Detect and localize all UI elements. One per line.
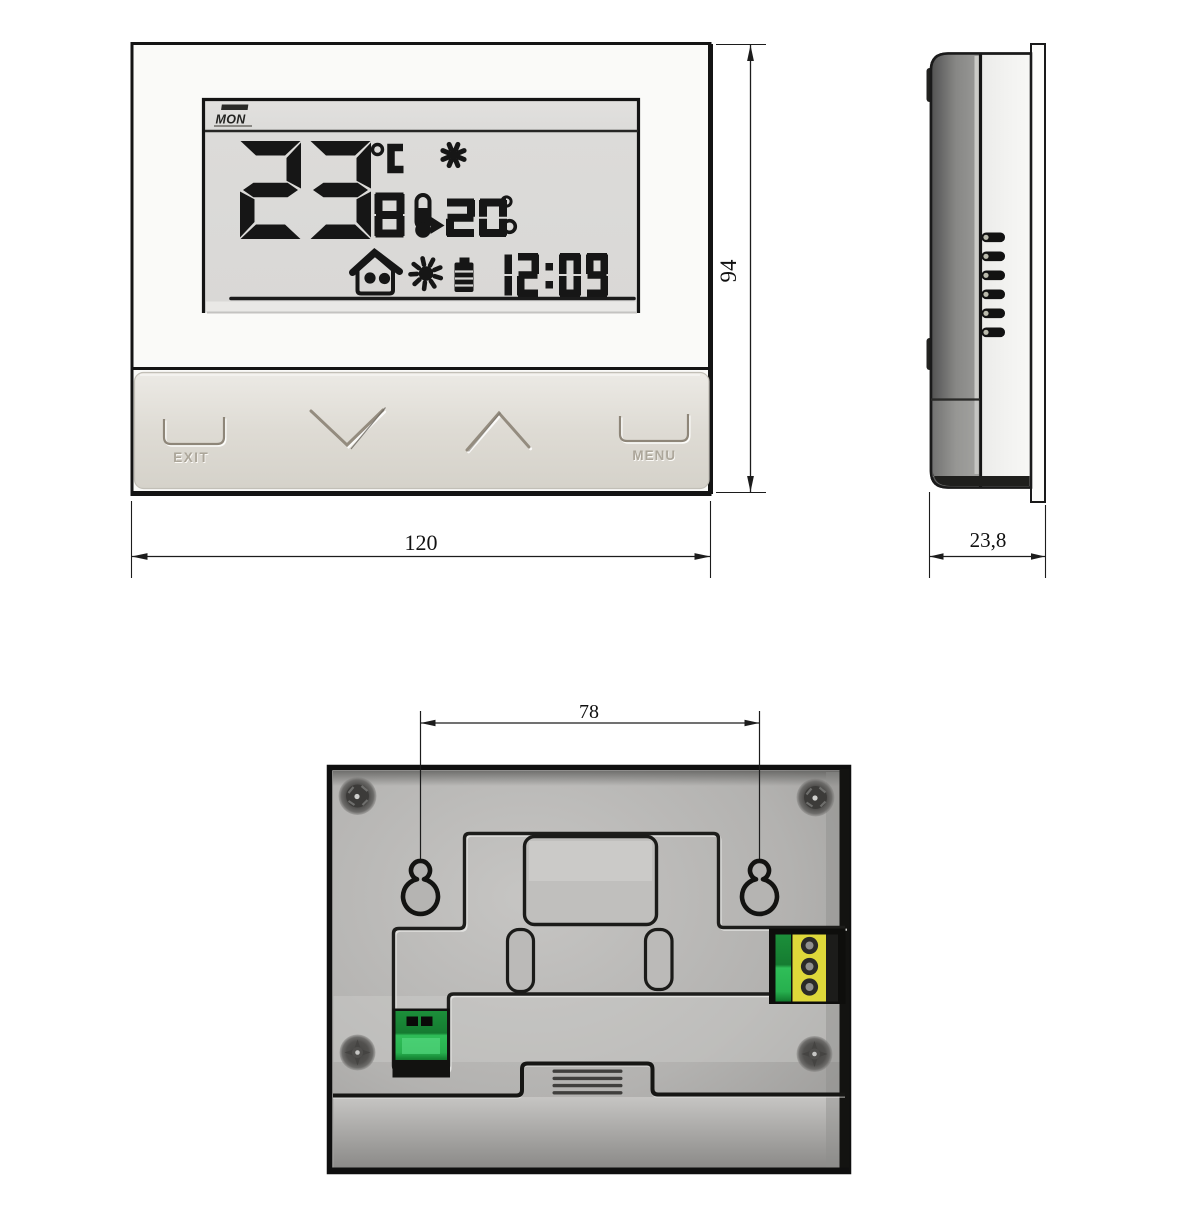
svg-text:EXIT: EXIT <box>173 450 209 465</box>
svg-text:78: 78 <box>579 701 599 723</box>
svg-text:120: 120 <box>405 530 438 555</box>
svg-text:23,8: 23,8 <box>970 528 1007 552</box>
svg-text:MON: MON <box>216 113 247 127</box>
svg-text:MENU: MENU <box>632 448 676 463</box>
svg-text:94: 94 <box>716 259 741 283</box>
